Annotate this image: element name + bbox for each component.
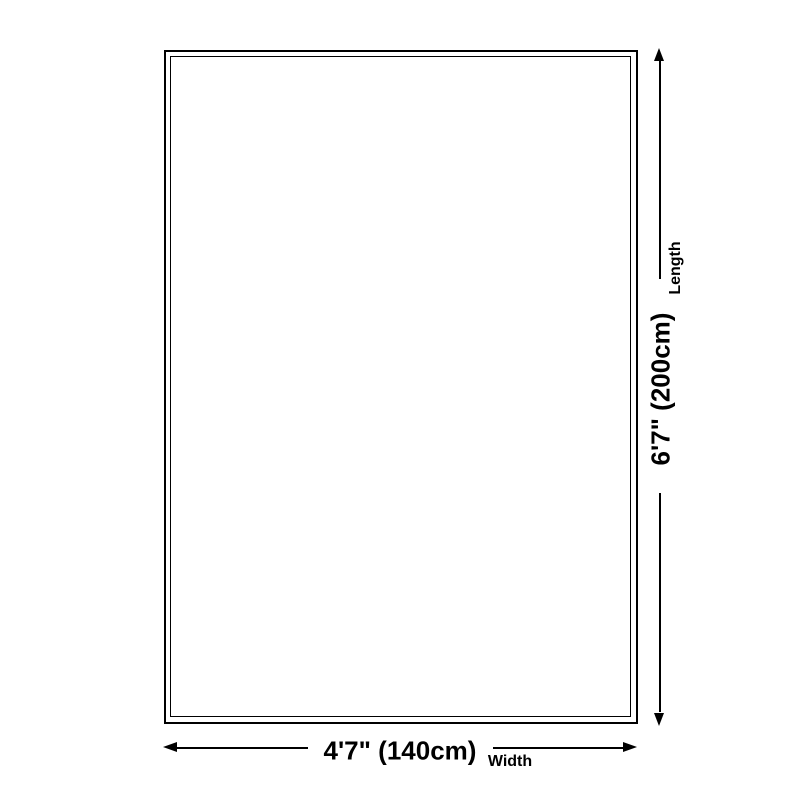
arrow-right-icon: [623, 742, 637, 752]
length-dimension-line-upper: [659, 60, 661, 279]
rug-outline: [164, 50, 638, 724]
width-dimension-value: 4'7" (140cm): [324, 736, 477, 767]
length-dimension-label: Length: [667, 241, 685, 294]
length-dimension-line-lower: [659, 493, 661, 712]
width-dimension-line-right: [493, 747, 623, 749]
width-dimension-line-left: [177, 747, 308, 749]
arrow-up-icon: [654, 48, 664, 61]
arrow-left-icon: [163, 742, 177, 752]
rug-inner-outline: [170, 56, 631, 717]
size-diagram: 6'7" (200cm) Length 4'7" (140cm) Width: [0, 0, 800, 800]
length-dimension-value: 6'7" (200cm): [646, 313, 677, 466]
width-dimension-label: Width: [488, 753, 532, 771]
arrow-down-icon: [654, 713, 664, 726]
